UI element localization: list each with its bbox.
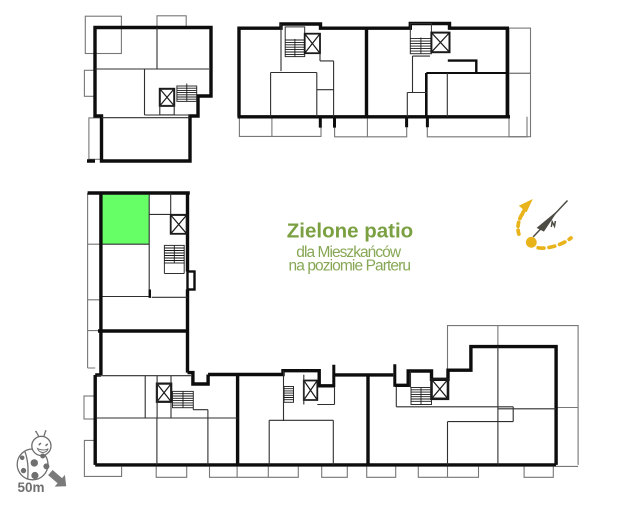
svg-text:50m: 50m xyxy=(17,480,44,495)
svg-text:na poziomie Parteru: na poziomie Parteru xyxy=(288,257,410,274)
svg-text:Zielone patio: Zielone patio xyxy=(287,219,413,242)
